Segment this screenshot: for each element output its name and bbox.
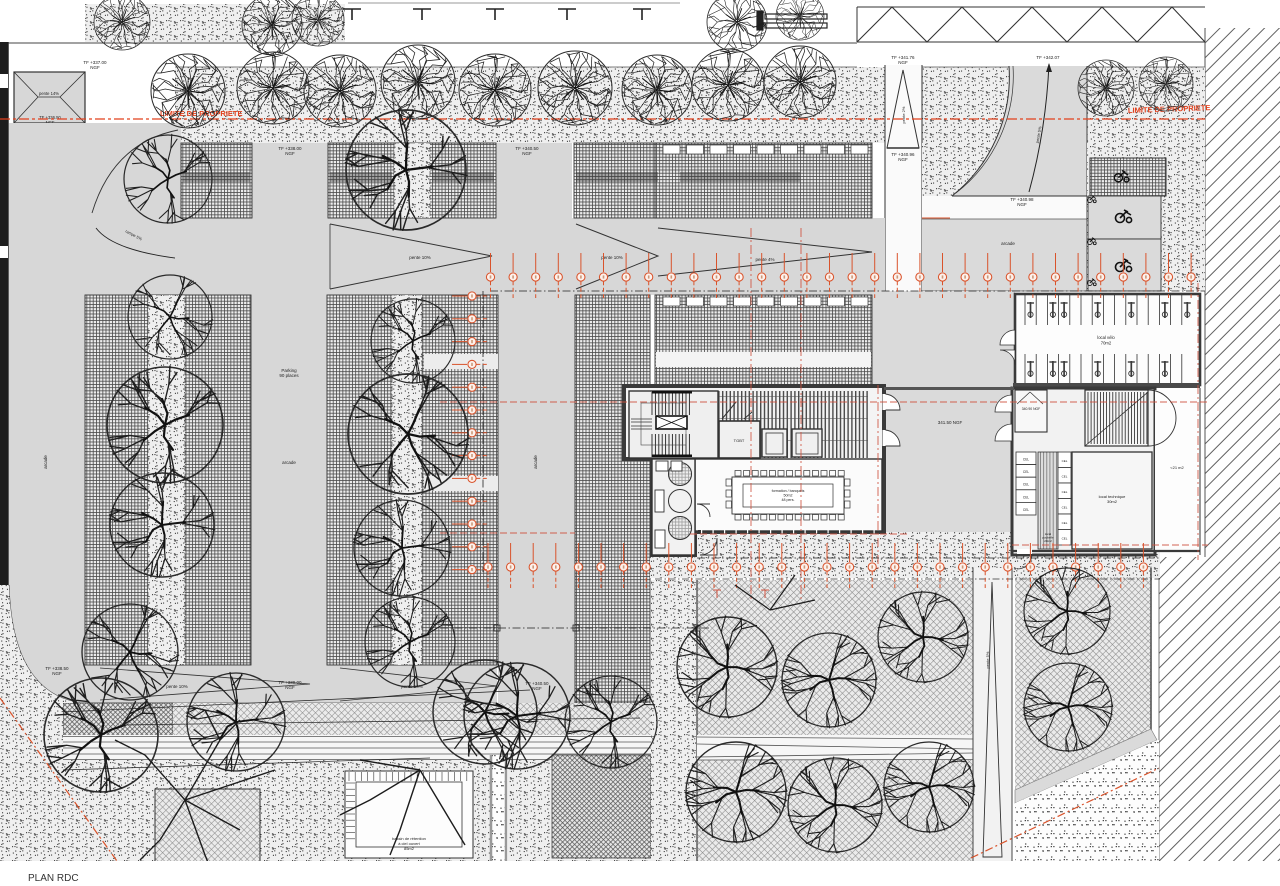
svg-text:pente 10%: pente 10% [601, 255, 623, 260]
svg-text:pente 14%: pente 14% [39, 91, 59, 96]
svg-text:<21 m2: <21 m2 [1170, 465, 1184, 470]
svg-text:NGF: NGF [285, 151, 295, 156]
svg-text:pente 5%: pente 5% [985, 651, 990, 668]
svg-text:PLAN RDC: PLAN RDC [28, 873, 79, 884]
svg-text:pente 2%: pente 2% [901, 106, 906, 123]
svg-text:pente 10%: pente 10% [166, 684, 188, 689]
svg-text:30m2: 30m2 [1107, 499, 1118, 504]
svg-text:TF +342.07: TF +342.07 [1036, 55, 1060, 60]
svg-text:arcade: arcade [1001, 241, 1015, 246]
svg-text:CEL: CEL [1062, 475, 1068, 479]
svg-text:local vélo: local vélo [1097, 335, 1115, 340]
svg-text:NGF: NGF [90, 65, 100, 70]
svg-text:NGF: NGF [898, 60, 908, 65]
svg-text:pente 10%: pente 10% [409, 255, 431, 260]
svg-text:NGF: NGF [1017, 202, 1027, 207]
svg-text:CEL: CEL [1062, 521, 1068, 525]
svg-text:CEL: CEL [1023, 483, 1029, 487]
svg-text:formation / banquets: formation / banquets [772, 489, 805, 493]
svg-text:85m2: 85m2 [404, 846, 415, 851]
svg-text:90 places: 90 places [279, 373, 299, 378]
svg-text:CEL: CEL [1062, 506, 1068, 510]
svg-text:CEL: CEL [1062, 459, 1068, 463]
svg-text:arcade: arcade [43, 455, 48, 469]
svg-text:CEL: CEL [1023, 470, 1029, 474]
svg-text:CEL: CEL [1023, 458, 1029, 462]
svg-text:48 pers.: 48 pers. [782, 498, 795, 502]
svg-text:NGF: NGF [522, 151, 532, 156]
svg-text:50m2: 50m2 [784, 494, 793, 498]
svg-text:TGBT: TGBT [734, 438, 745, 443]
svg-text:NGF: NGF [532, 686, 542, 691]
svg-text:20m2: 20m2 [1044, 539, 1052, 543]
svg-text:arcade: arcade [533, 455, 538, 469]
svg-text:CEL: CEL [1023, 508, 1029, 512]
svg-text:70m2: 70m2 [1101, 341, 1112, 346]
svg-text:pente 4%: pente 4% [755, 257, 774, 262]
svg-text:340.90 NGF: 340.90 NGF [1022, 407, 1040, 411]
svg-text:NGF: NGF [898, 157, 908, 162]
svg-text:CEL: CEL [1062, 537, 1068, 541]
svg-text:arcade: arcade [282, 460, 296, 465]
svg-text:CEL: CEL [1023, 495, 1029, 499]
svg-text:CEL: CEL [1062, 490, 1068, 494]
svg-text:NGF: NGF [52, 671, 62, 676]
svg-text:341.50 NGF: 341.50 NGF [938, 420, 963, 425]
